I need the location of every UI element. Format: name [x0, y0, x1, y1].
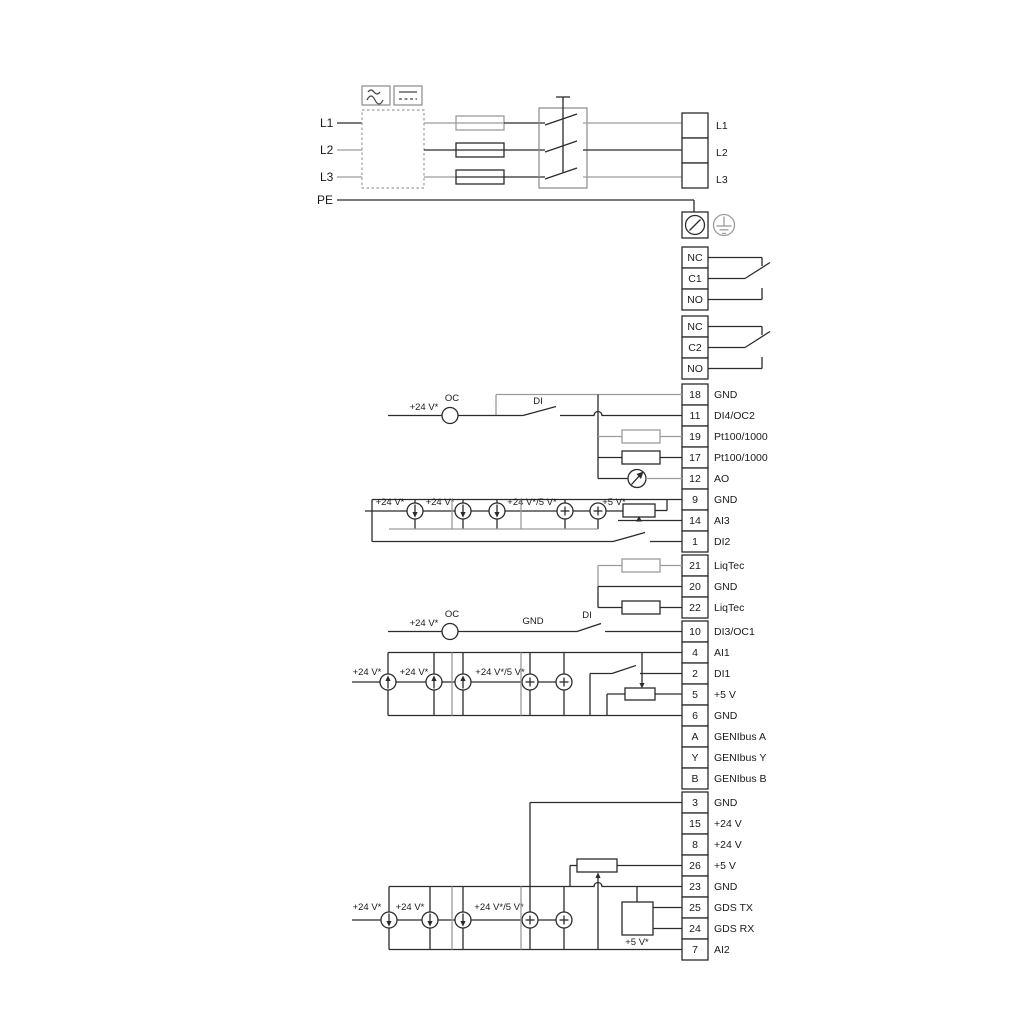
label-3: GND [714, 797, 738, 809]
pin-20: 20 [689, 581, 701, 593]
strip4-terminals: 4AI1 2DI1 5+5 V 6GND AGENIbus A YGENIbus… [682, 642, 767, 789]
wiring-diagram: L1 L2 L3 PE [0, 0, 1024, 1024]
fuse-l3 [456, 170, 504, 184]
power-label-l1: L1 [320, 116, 334, 130]
liqtec-terminals: 21LiqTec 20GND 22LiqTec [598, 555, 744, 618]
annotation-gnd: GND [522, 616, 543, 627]
annotation-di: DI [533, 396, 543, 407]
label-15: +24 V [714, 818, 742, 830]
annotation-24v: +24 V* [396, 902, 425, 913]
pin-8: 8 [692, 839, 698, 851]
label-18: GND [714, 389, 738, 401]
annotation-24v-5v: +24 V*/5 V* [474, 902, 524, 913]
relay2-no: NO [687, 363, 703, 375]
pt100-sensor-2 [622, 451, 660, 464]
pin-6: 6 [692, 710, 698, 722]
fuse-l1 [456, 116, 504, 130]
strip1-wiring: +24 V* OC DI +24 V* +24 V* +24 V*/5 V* +… [365, 393, 682, 542]
strip1-terminals: 18GND 11DI4/OC2 19Pt100/1000 17Pt100/100… [682, 384, 768, 552]
pin-1: 1 [692, 536, 698, 548]
label-6: GND [714, 710, 738, 722]
pin-3: 3 [692, 797, 698, 809]
annotation-di: DI [582, 610, 592, 621]
pt100-sensor-1 [622, 430, 660, 443]
earth-ground-icon [714, 215, 735, 236]
annotation-oc: OC [445, 609, 459, 620]
potentiometer-ai2 [577, 859, 617, 872]
pin-a: A [691, 731, 698, 743]
label-25: GDS TX [714, 902, 753, 914]
oc-output-icon [442, 624, 458, 640]
terminal-box-l2 [682, 138, 708, 163]
label-4: AI1 [714, 647, 730, 659]
power-label-l2: L2 [320, 143, 334, 157]
strip5-terminals: 3GND 15+24 V 8+24 V 26+5 V 23GND 25GDS T… [682, 792, 754, 960]
fuse-l2 [456, 143, 504, 157]
annotation-24v-5v: +24 V*/5 V* [475, 667, 525, 678]
label-21: LiqTec [714, 560, 744, 572]
pin-17: 17 [689, 452, 701, 464]
annotation-24v: +24 V* [410, 402, 439, 413]
terminal-box-l3 [682, 163, 708, 188]
label-12: AO [714, 473, 729, 485]
label-22: LiqTec [714, 602, 744, 614]
pin-24: 24 [689, 923, 701, 935]
pin-12: 12 [689, 473, 701, 485]
label-y: GENIbus Y [714, 752, 766, 764]
pin-15: 15 [689, 818, 701, 830]
relay2-block: NC C2 NO [682, 316, 770, 379]
relay1-nc: NC [687, 252, 703, 264]
dc-symbol-box [394, 86, 422, 105]
relay2-c2: C2 [688, 342, 702, 354]
pin-11: 11 [690, 410, 701, 422]
pin-y: Y [691, 752, 698, 764]
relay1-c1: C1 [688, 273, 702, 285]
pin-5: 5 [692, 689, 698, 701]
potentiometer-ai3 [623, 504, 655, 517]
terminal-label-l2: L2 [716, 147, 728, 159]
annotation-oc: OC [445, 393, 459, 404]
label-5: +5 V [714, 689, 736, 701]
relay1-no: NO [687, 294, 703, 306]
pin-22: 22 [689, 602, 701, 614]
annotation-24v-5v: +24 V*/5 V* [507, 497, 557, 508]
power-label-l3: L3 [320, 170, 334, 184]
label-9: GND [714, 494, 738, 506]
pin-23: 23 [689, 881, 701, 893]
label-8: +24 V [714, 839, 742, 851]
annotation-24v: +24 V* [426, 497, 455, 508]
pin-4: 4 [692, 647, 698, 659]
annotation-24v: +24 V* [410, 618, 439, 629]
pin-9: 9 [692, 494, 698, 506]
pin-2: 2 [692, 668, 698, 680]
pin-14: 14 [689, 515, 701, 527]
wiring-diagram-page: L1 L2 L3 PE [0, 0, 1024, 1024]
potentiometer-ai1 [625, 688, 655, 700]
annotation-24v: +24 V* [353, 902, 382, 913]
label-a: GENIbus A [714, 731, 766, 743]
pin-10: 10 [689, 626, 701, 638]
pin-26: 26 [689, 860, 701, 872]
label-14: AI3 [714, 515, 730, 527]
pe-terminal [682, 212, 708, 238]
liqtec-sensor-1 [622, 559, 660, 572]
terminal-label-l1: L1 [716, 120, 728, 132]
label-24: GDS RX [714, 923, 754, 935]
annotation-24v: +24 V* [376, 497, 405, 508]
label-2: DI1 [714, 668, 731, 680]
liqtec-sensor-2 [622, 601, 660, 614]
pin-19: 19 [689, 431, 701, 443]
label-20: GND [714, 581, 738, 593]
annotation-24v: +24 V* [353, 667, 382, 678]
ac-symbol-box [362, 86, 390, 105]
main-switch [539, 97, 587, 188]
label-26: +5 V [714, 860, 736, 872]
power-input-section: L1 L2 L3 PE [317, 86, 735, 238]
pin-21: 21 [689, 560, 701, 572]
label-19: Pt100/1000 [714, 431, 768, 443]
oc-output-icon [442, 408, 458, 424]
annotation-5v: +5 V* [625, 937, 649, 948]
pin-7: 7 [692, 944, 698, 956]
annotation-24v: +24 V* [400, 667, 429, 678]
gds-sensor-box [622, 902, 653, 935]
filter-box [362, 110, 424, 188]
label-1: DI2 [714, 536, 731, 548]
pin-25: 25 [689, 902, 701, 914]
analog-output-meter-icon [628, 470, 646, 488]
relay2-nc: NC [687, 321, 703, 333]
pin-18: 18 [689, 389, 701, 401]
label-11: DI4/OC2 [714, 410, 755, 422]
label-23: GND [714, 881, 738, 893]
terminal-label-l3: L3 [716, 174, 728, 186]
power-label-pe: PE [317, 193, 333, 207]
relay1-block: NC C1 NO [682, 247, 770, 310]
label-10: DI3/OC1 [714, 626, 755, 638]
label-7: AI2 [714, 944, 730, 956]
terminal-box-l1 [682, 113, 708, 138]
label-b: GENIbus B [714, 773, 767, 785]
pin-b: B [691, 773, 698, 785]
label-17: Pt100/1000 [714, 452, 768, 464]
strip4-wiring: +24 V* +24 V* +24 V*/5 V* [352, 653, 682, 716]
strip5-wiring: +24 V* +24 V* +24 V*/5 V* +5 V* [352, 803, 682, 950]
